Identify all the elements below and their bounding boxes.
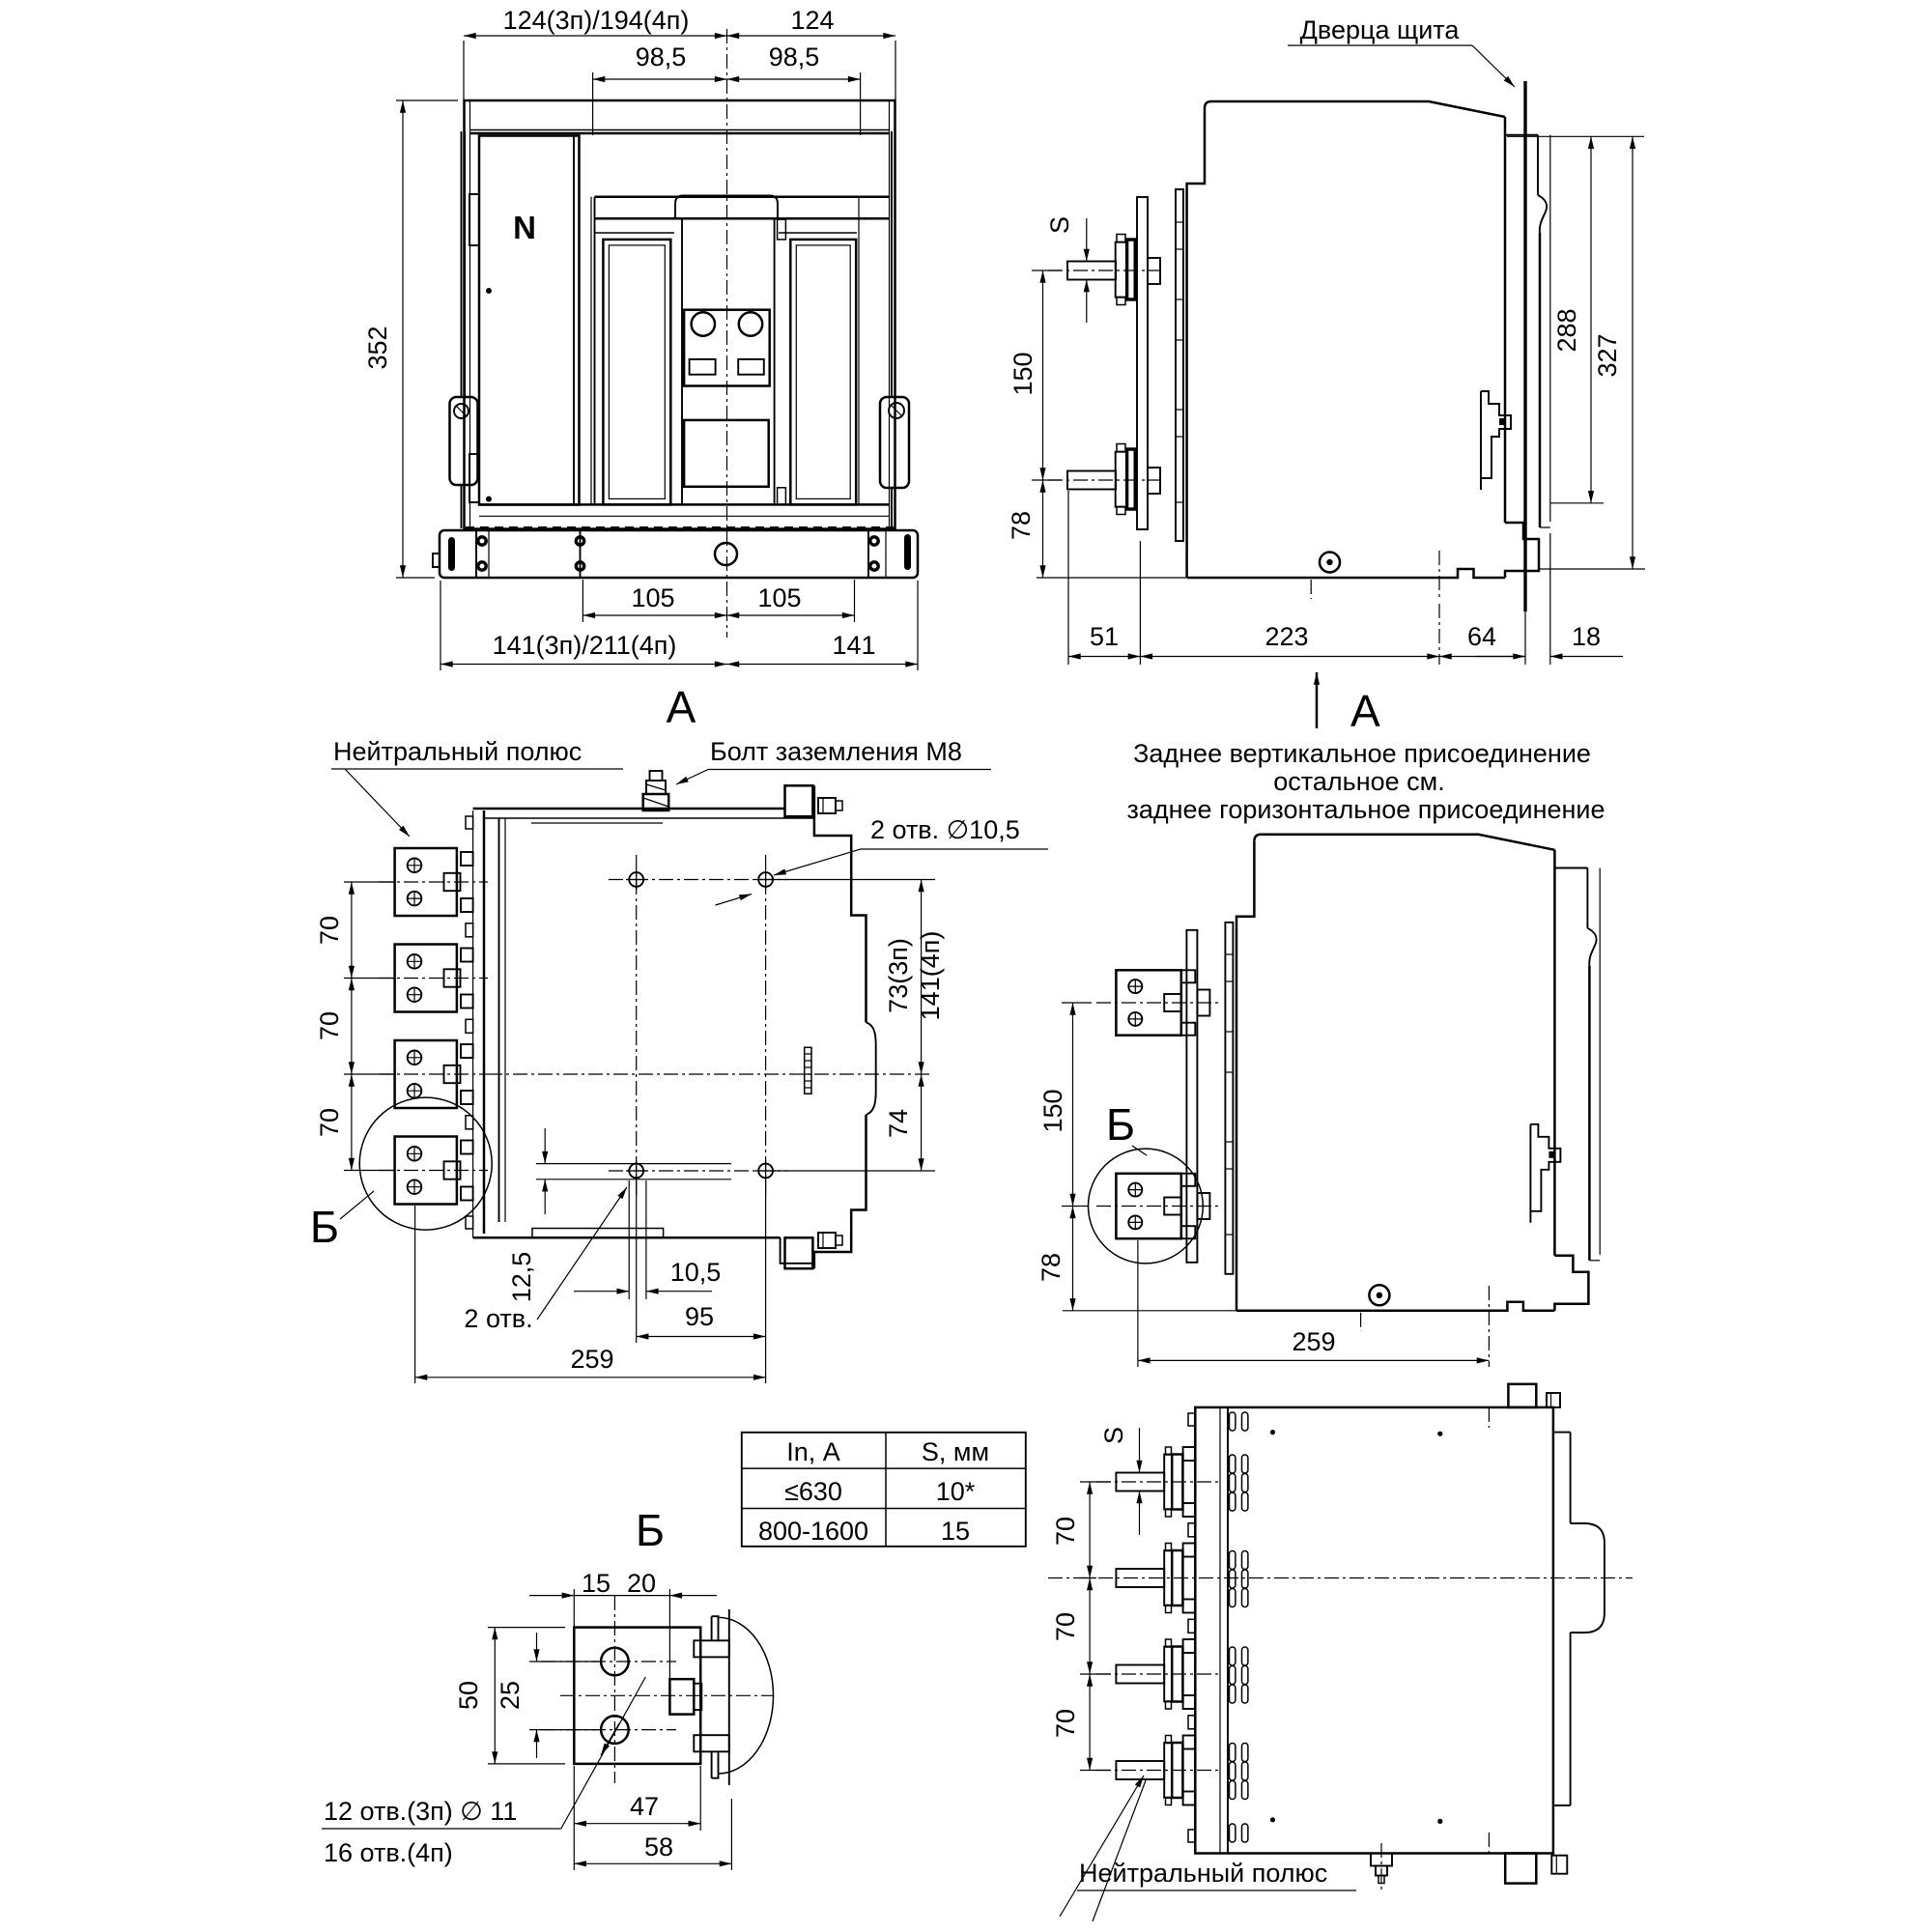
- svg-text:S: S: [1099, 1427, 1128, 1444]
- svg-text:S, мм: S, мм: [922, 1437, 989, 1466]
- svg-text:141(4п): 141(4п): [916, 931, 945, 1021]
- svg-text:2 отв. ∅10,5: 2 отв. ∅10,5: [870, 815, 1020, 844]
- svg-text:заднее горизонтальное присоеди: заднее горизонтальное присоединение: [1126, 795, 1605, 824]
- svg-text:259: 259: [570, 1345, 613, 1374]
- svg-text:259: 259: [1292, 1327, 1335, 1356]
- svg-text:105: 105: [757, 583, 801, 612]
- svg-text:64: 64: [1467, 622, 1496, 651]
- svg-text:105: 105: [631, 583, 674, 612]
- svg-text:S: S: [1045, 216, 1074, 234]
- svg-text:Болт заземления М8: Болт заземления М8: [710, 737, 962, 766]
- svg-text:остальное см.: остальное см.: [1273, 767, 1444, 796]
- svg-text:124(3п)/194(4п): 124(3п)/194(4п): [503, 6, 690, 35]
- svg-text:327: 327: [1593, 333, 1622, 377]
- svg-text:15: 15: [582, 1569, 611, 1598]
- svg-text:Дверца щита: Дверца щита: [1300, 15, 1461, 44]
- svg-text:20: 20: [627, 1569, 656, 1598]
- svg-text:150: 150: [1038, 1089, 1067, 1132]
- svg-text:800-1600: 800-1600: [758, 1517, 868, 1546]
- svg-text:47: 47: [630, 1792, 659, 1821]
- svg-text:18: 18: [1572, 622, 1601, 651]
- svg-text:95: 95: [685, 1302, 714, 1331]
- svg-text:10,5: 10,5: [670, 1258, 722, 1287]
- svg-text:70: 70: [315, 916, 344, 945]
- svg-text:Б: Б: [1106, 1099, 1135, 1150]
- svg-text:58: 58: [644, 1833, 673, 1861]
- svg-text:10*: 10*: [936, 1477, 976, 1506]
- svg-text:12,5: 12,5: [507, 1252, 536, 1303]
- svg-text:16 отв.(4п): 16 отв.(4п): [324, 1838, 453, 1867]
- svg-text:98,5: 98,5: [769, 43, 820, 71]
- svg-text:2 отв.: 2 отв.: [464, 1304, 532, 1333]
- svg-text:78: 78: [1007, 511, 1036, 540]
- svg-text:25: 25: [496, 1681, 525, 1710]
- svg-text:73(3п): 73(3п): [884, 938, 913, 1013]
- svg-text:50: 50: [454, 1681, 483, 1710]
- svg-text:223: 223: [1264, 622, 1308, 651]
- svg-text:51: 51: [1090, 622, 1119, 651]
- svg-text:74: 74: [884, 1109, 913, 1138]
- svg-text:70: 70: [1051, 1709, 1080, 1738]
- svg-text:70: 70: [315, 1011, 344, 1040]
- svg-text:288: 288: [1552, 308, 1581, 352]
- svg-text:12 отв.(3п) ∅ 11: 12 отв.(3п) ∅ 11: [324, 1797, 517, 1826]
- svg-text:Б: Б: [310, 1202, 339, 1252]
- svg-text:98,5: 98,5: [636, 43, 687, 71]
- svg-text:15: 15: [941, 1517, 970, 1546]
- svg-text:78: 78: [1037, 1253, 1065, 1282]
- svg-text:А: А: [667, 682, 696, 732]
- svg-text:352: 352: [363, 326, 392, 369]
- svg-text:≤630: ≤630: [784, 1477, 842, 1506]
- svg-text:Заднее вертикальное присоедине: Заднее вертикальное присоединение: [1133, 739, 1591, 768]
- svg-text:141(3п)/211(4п): 141(3п)/211(4п): [493, 631, 677, 660]
- svg-text:124: 124: [790, 6, 834, 35]
- svg-text:А: А: [1350, 686, 1380, 736]
- svg-text:150: 150: [1009, 352, 1037, 395]
- svg-text:N: N: [513, 210, 536, 245]
- svg-text:70: 70: [1051, 1517, 1080, 1546]
- svg-text:70: 70: [1051, 1612, 1080, 1641]
- svg-text:Б: Б: [636, 1505, 665, 1555]
- svg-text:70: 70: [315, 1108, 344, 1137]
- svg-text:In, А: In, А: [786, 1437, 840, 1466]
- svg-text:Нейтральный полюс: Нейтральный полюс: [1079, 1859, 1327, 1888]
- svg-text:Нейтральный полюс: Нейтральный полюс: [333, 737, 582, 766]
- svg-text:141: 141: [832, 631, 875, 660]
